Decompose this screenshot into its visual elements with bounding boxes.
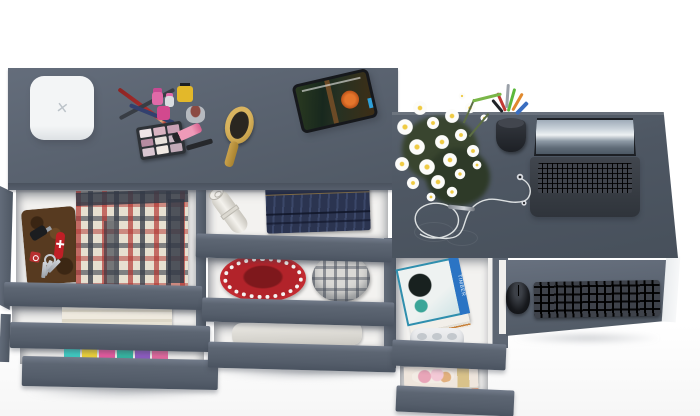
pen-cup-rim <box>498 118 524 128</box>
eyeshadow-pan <box>139 128 152 137</box>
book-stack: TIMBER <box>395 256 474 338</box>
desk-drawer-1-front <box>391 340 506 371</box>
eyeshadow-pan <box>153 126 166 135</box>
left-drawer-2-front <box>10 322 211 352</box>
folded-jeans <box>265 184 371 234</box>
daisy <box>396 118 414 136</box>
earbuds-cable <box>398 152 558 252</box>
shirt-fold <box>104 221 114 287</box>
eyeshadow-pan <box>170 143 183 152</box>
white-charger-box: ✕ <box>30 76 94 140</box>
eyeshadow-pan <box>154 136 167 145</box>
middle-drawer-3-front <box>208 342 397 373</box>
pen-cup <box>494 100 528 154</box>
daisy <box>426 116 440 130</box>
leather-wallet <box>21 206 81 286</box>
plaid-shirts <box>76 191 188 288</box>
tray-rail-left <box>499 260 506 334</box>
yellow-polish <box>177 86 193 102</box>
desk-drawer-2-front <box>395 385 514 416</box>
eyeshadow-pan <box>142 148 155 157</box>
red-woven-basket <box>220 254 306 302</box>
daisy <box>444 108 460 124</box>
x-mark-icon: ✕ <box>55 98 70 118</box>
left-drawer-1-front <box>4 282 202 310</box>
mouse <box>506 282 530 314</box>
red-key-fob <box>29 251 41 263</box>
wireless-keyboard <box>534 280 661 318</box>
pink-polish <box>157 106 170 120</box>
small-pink-polish <box>152 92 163 105</box>
laptop-screen <box>534 118 636 156</box>
silver-jar <box>186 106 205 123</box>
left-drawer-3-front <box>22 356 219 390</box>
daisy-bud <box>458 92 466 100</box>
daisy <box>412 100 428 116</box>
tablet-play-icon <box>367 98 374 109</box>
tablet-scene-character <box>339 89 361 111</box>
daisy <box>454 128 468 142</box>
brush-handle <box>224 140 240 167</box>
shirt-sleeve <box>168 199 184 283</box>
eyeshadow-pan <box>156 145 169 154</box>
floor-shadow-tray <box>512 332 662 344</box>
eyeshadow-pan <box>141 138 154 147</box>
middle-drawer-2-front <box>202 297 395 326</box>
middle-unit-left-rail <box>196 190 206 348</box>
daisy <box>434 134 450 150</box>
middle-drawer-1-front <box>196 233 393 262</box>
laptop-wallpaper <box>536 120 634 154</box>
scene: TIMBER ✕ <box>0 0 700 416</box>
